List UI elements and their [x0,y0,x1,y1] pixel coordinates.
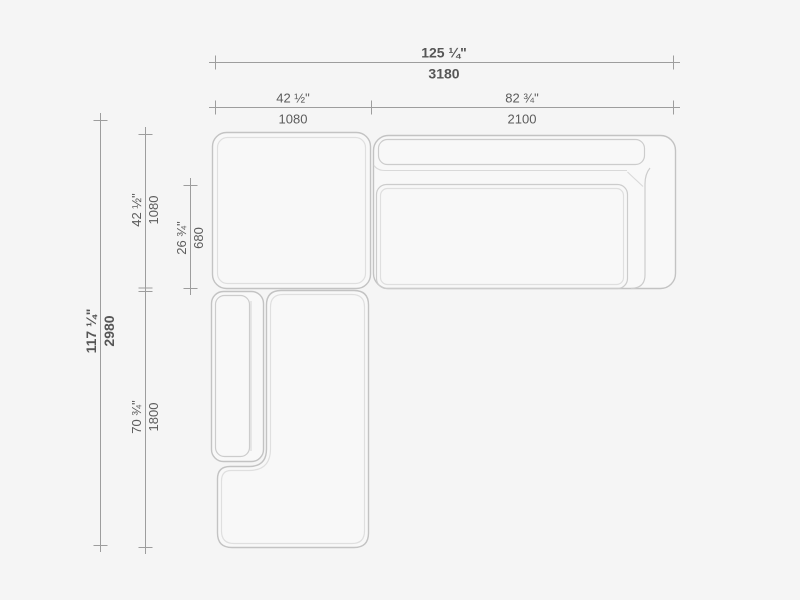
dim-left-depths: 42 ½" 1080 70 ¾" 1800 [129,127,161,554]
dim-overall-width-inches: 125 ¼" [421,45,467,61]
chaise-module [212,291,369,548]
dim-lounge-width-mm: 2100 [508,112,537,127]
dim-corner-depth-mm: 1080 [146,196,161,225]
corner-module-outer-outline [213,133,371,289]
dim-corner-depth-inches: 42 ½" [129,193,144,227]
sofa-dimension-drawing: 125 ¼" 3180 42 ½" 1080 82 ¾" 2100 117 ¼"… [0,0,800,600]
dim-lounge-width-inches: 82 ¾" [505,91,539,106]
dim-corner-width-mm: 1080 [279,112,308,127]
dim-chaise-depth-inches: 70 ¾" [129,400,144,434]
dim-corner-width-inches: 42 ½" [276,91,310,106]
dim-overall-depth: 117 ¼" 2980 [83,113,117,552]
dim-section-widths: 42 ½" 1080 82 ¾" 2100 [209,91,680,127]
dim-seat-depth-inches: 26 ¾" [174,221,189,255]
dim-seat-depth: 26 ¾" 680 [174,178,206,295]
dim-overall-width: 125 ¼" 3180 [209,45,680,82]
sofa-module-outer-outline [374,136,676,289]
dim-overall-depth-inches: 117 ¼" [83,309,99,354]
dim-overall-width-mm: 3180 [428,66,459,82]
dim-seat-depth-mm: 680 [191,227,206,249]
chaise-armrest-outer-outline [212,292,264,462]
dim-overall-depth-mm: 2980 [101,315,117,346]
sofa-module [374,136,676,289]
dim-chaise-depth-mm: 1800 [146,403,161,432]
corner-module [213,133,371,289]
